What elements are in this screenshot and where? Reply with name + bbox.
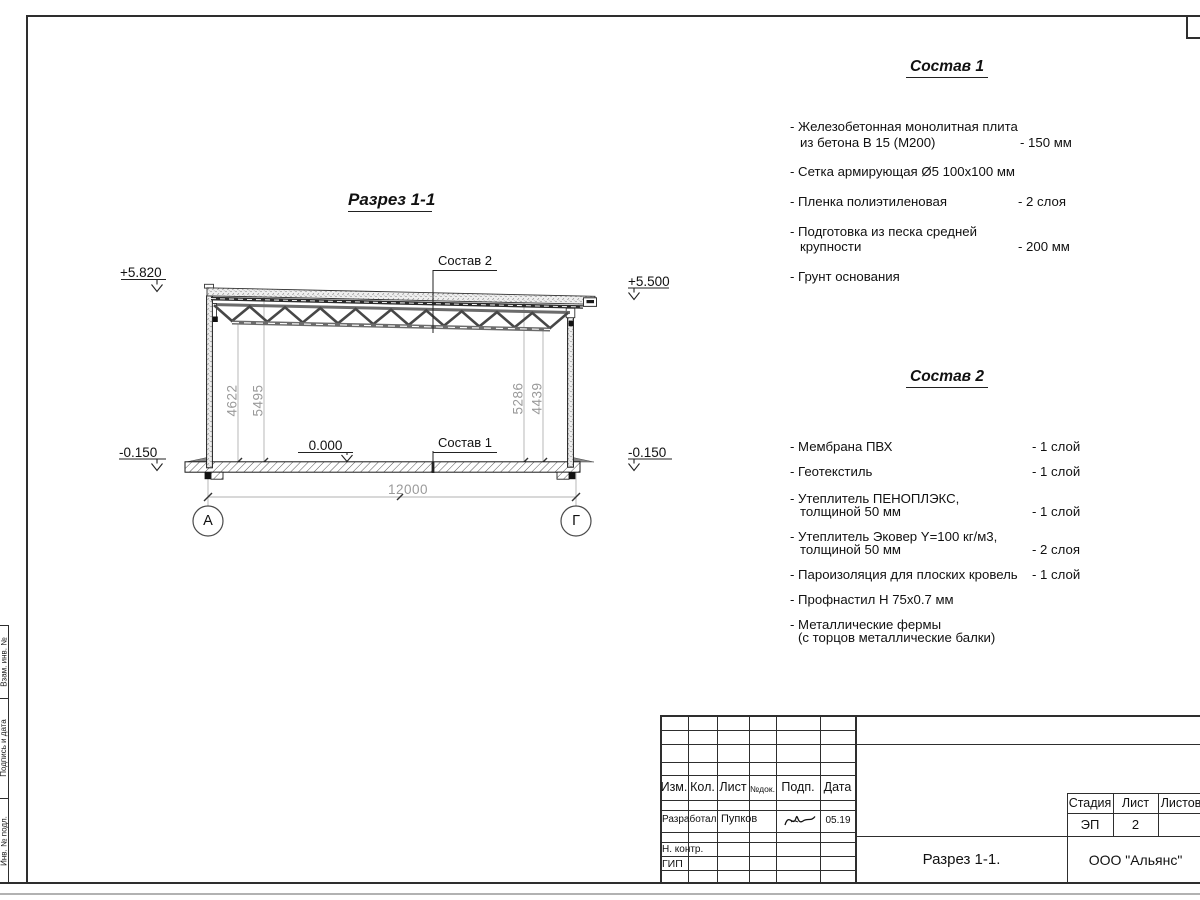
- tb-header-list: Лист: [717, 780, 749, 794]
- list-item-value: - 1 слой: [1032, 567, 1080, 582]
- tb-header-izm: Изм.: [660, 780, 688, 794]
- margin-label: Подпись и дата: [0, 698, 9, 798]
- tb-sheet-header: Лист: [1113, 796, 1158, 810]
- list-item: - Профнастил Н 75х0.7 мм: [790, 592, 954, 607]
- tb-stage-value: ЭП: [1067, 817, 1113, 832]
- floor-slab: [185, 458, 594, 473]
- tb-developed-date: 05.19: [821, 815, 855, 826]
- list-item-value: - 1 слой: [1032, 439, 1080, 454]
- list-item: - Подготовка из песка средней: [790, 224, 977, 239]
- tb-sheet-value: 2: [1113, 817, 1158, 832]
- composition-2-title: Состав 2: [906, 368, 988, 388]
- list-item-value: - 150 мм: [1020, 135, 1072, 150]
- list-item: - Пароизоляция для плоских кровель: [790, 567, 1018, 582]
- list-item: - Пленка полиэтиленовая: [790, 194, 947, 209]
- list-item: крупности: [800, 239, 861, 254]
- signature: [782, 809, 818, 831]
- foundation-pads: [205, 472, 576, 479]
- composition-1-title: Состав 1: [906, 58, 988, 78]
- tb-stage-header: Стадия: [1067, 796, 1113, 810]
- elevation-bottom-right: -0.150: [628, 445, 666, 460]
- tb-ncontr-label: Н. контр.: [662, 844, 703, 855]
- list-item-value: - 2 слоя: [1032, 542, 1080, 557]
- list-item: толщиной 50 мм: [800, 504, 901, 519]
- elevation-floor: 0.000: [298, 438, 353, 453]
- list-item: - Железобетонная монолитная плита: [790, 119, 1018, 134]
- dim-right-inner: 4439: [530, 369, 545, 429]
- tb-doc-name: Разрез 1-1.: [856, 851, 1067, 868]
- list-item: - Мембрана ПВХ: [790, 439, 892, 454]
- dim-right-outer: 5286: [511, 369, 526, 429]
- tb-developed-name: Пупков: [721, 813, 757, 825]
- list-item: (с торцов металлические балки): [798, 630, 995, 645]
- list-item: из бетона В 15 (М200): [800, 135, 935, 150]
- elevation-top-left: +5.820: [120, 265, 162, 280]
- list-item-value: - 2 слоя: [1018, 194, 1066, 209]
- tb-header-ndoc: №док.: [749, 784, 776, 794]
- tb-header-kol: Кол.: [688, 780, 717, 794]
- margin-label: Взам. инв. №: [0, 625, 9, 698]
- right-column: [566, 308, 575, 467]
- axis-bubble-g: Г: [568, 513, 584, 529]
- axis-bubble-a: А: [200, 513, 216, 529]
- tb-developed-label: Разработал: [662, 814, 716, 825]
- margin-label: Инв. № подл.: [0, 798, 9, 883]
- drawing-sheet: Разрез 1-1 Состав 2 Состав 1 +5.820 +5.5…: [0, 0, 1200, 900]
- roof-leader-label: Состав 2: [433, 253, 497, 271]
- list-item-value: - 1 слой: [1032, 464, 1080, 479]
- list-item-value: - 200 мм: [1018, 239, 1070, 254]
- axis-bubbles: [193, 506, 591, 536]
- list-item-value: - 1 слой: [1032, 504, 1080, 519]
- view-title: Разрез 1-1: [348, 190, 432, 212]
- floor-leader-label: Состав 1: [433, 435, 497, 453]
- tb-header-data: Дата: [820, 780, 855, 794]
- list-item: - Сетка армирующая Ø5 100х100 мм: [790, 164, 1015, 179]
- dim-span: 12000: [382, 482, 434, 497]
- tb-company: ООО "Альянс": [1067, 852, 1200, 868]
- elevation-bottom-left: -0.150: [119, 445, 157, 460]
- elevation-top-right: +5.500: [628, 274, 670, 289]
- dim-left-outer: 5495: [251, 371, 266, 431]
- roof-truss: [212, 304, 570, 330]
- tb-header-podp: Подп.: [776, 780, 820, 794]
- tb-gip-label: ГИП: [662, 858, 683, 870]
- list-item: - Грунт основания: [790, 269, 900, 284]
- dim-left-inner: 4622: [225, 371, 240, 431]
- tb-sheets-header: Листов: [1158, 796, 1200, 810]
- list-item: толщиной 50 мм: [800, 542, 901, 557]
- list-item: - Геотекстиль: [790, 464, 872, 479]
